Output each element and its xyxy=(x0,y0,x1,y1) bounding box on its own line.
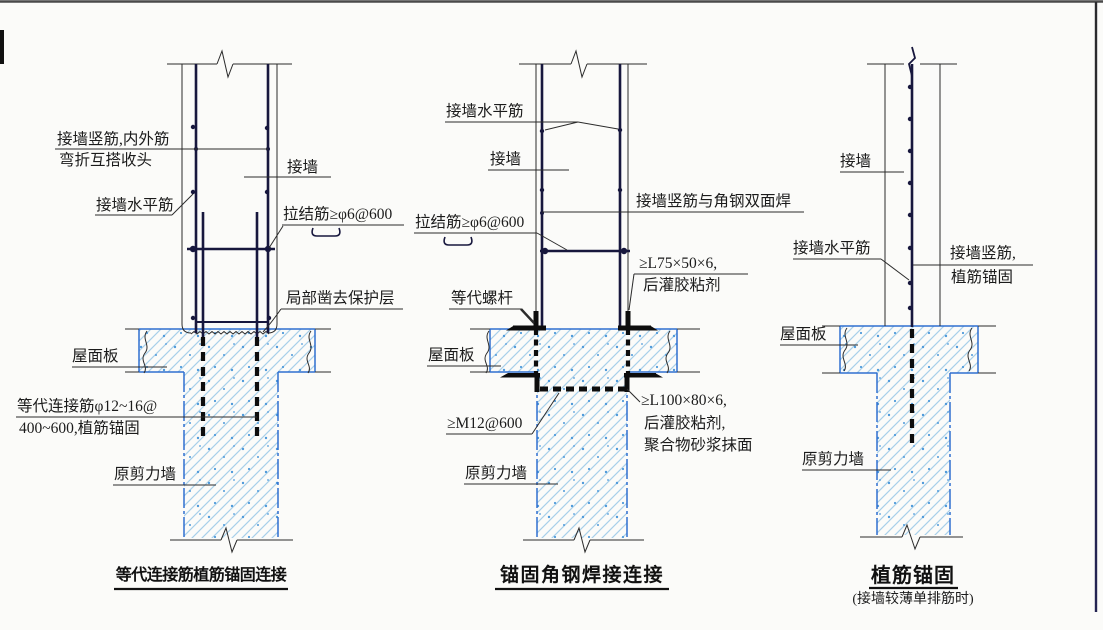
label-shear-wall-right: 原剪力墙 xyxy=(802,451,864,468)
stirrup-hook-icon xyxy=(312,228,340,236)
label-top-angle-line1: ≥L75×50×6, xyxy=(639,255,717,272)
label-vertical-rebar-right-line1: 接墙竖筋, xyxy=(950,245,1016,262)
stirrup-hook-icon xyxy=(444,237,472,245)
label-roof-slab-right: 屋面板 xyxy=(780,326,827,343)
diagram-title-left: 等代连接筋植筋锚固连接 xyxy=(91,561,311,585)
diagram-subtitle-right: (接墙较薄单排筋时) xyxy=(817,588,1009,608)
label-shear-wall-middle: 原剪力墙 xyxy=(465,465,527,482)
right-detail-linework xyxy=(780,47,1033,588)
label-tie-bar-middle: 拉结筋≥φ6@600 xyxy=(415,214,524,231)
label-shear-wall-left: 原剪力墙 xyxy=(114,466,176,483)
label-wall-vertical-rebar-note-line2: 弯折互搭收头 xyxy=(59,152,152,169)
construction-detail-sheet: 接墙竖筋,内外筋 弯折互搭收头 接墙 接墙水平筋 拉结筋≥φ6@600 局部凿去… xyxy=(0,0,1103,630)
label-wall-right: 接墙 xyxy=(840,153,871,170)
label-equiv-bolt: 等代螺杆 xyxy=(451,290,513,307)
label-bottom-angle-line2: 后灌胶粘剂, xyxy=(644,415,725,432)
label-bottom-angle-line1: ≥L100×80×6, xyxy=(641,392,727,409)
label-wall-vertical-rebar-note-line1: 接墙竖筋,内外筋 xyxy=(57,131,169,148)
label-anchor-bolt: ≥M12@600 xyxy=(447,415,522,432)
label-roof-slab-middle: 屋面板 xyxy=(428,347,475,364)
label-horizontal-rebar-left: 接墙水平筋 xyxy=(96,197,174,214)
label-equiv-rebar-line2: 400~600,植筋锚固 xyxy=(19,420,140,437)
label-horizontal-rebar-middle: 接墙水平筋 xyxy=(446,103,524,120)
diagram-title-right: 植筋锚固 xyxy=(820,559,1006,588)
drawing-canvas xyxy=(0,0,1103,630)
middle-detail-linework xyxy=(414,51,804,589)
label-wall-left: 接墙 xyxy=(287,159,318,176)
label-chisel-note: 局部凿去保护层 xyxy=(286,290,395,307)
label-horizontal-rebar-right: 接墙水平筋 xyxy=(793,240,871,257)
label-weld-note: 接墙竖筋与角钢双面焊 xyxy=(636,193,791,210)
diagram-title-middle: 锚固角钢焊接连接 xyxy=(472,560,692,587)
label-roof-slab-left: 屋面板 xyxy=(72,348,119,365)
label-vertical-rebar-right-line2: 植筋锚固 xyxy=(951,269,1013,286)
label-wall-middle: 接墙 xyxy=(490,151,521,168)
label-tie-bar-left: 拉结筋≥φ6@600 xyxy=(283,206,392,223)
label-bottom-angle-line3: 聚合物砂浆抹面 xyxy=(644,437,753,454)
label-equiv-rebar-line1: 等代连接筋φ12~16@ xyxy=(17,398,157,415)
label-top-angle-line2: 后灌胶粘剂 xyxy=(643,277,721,294)
